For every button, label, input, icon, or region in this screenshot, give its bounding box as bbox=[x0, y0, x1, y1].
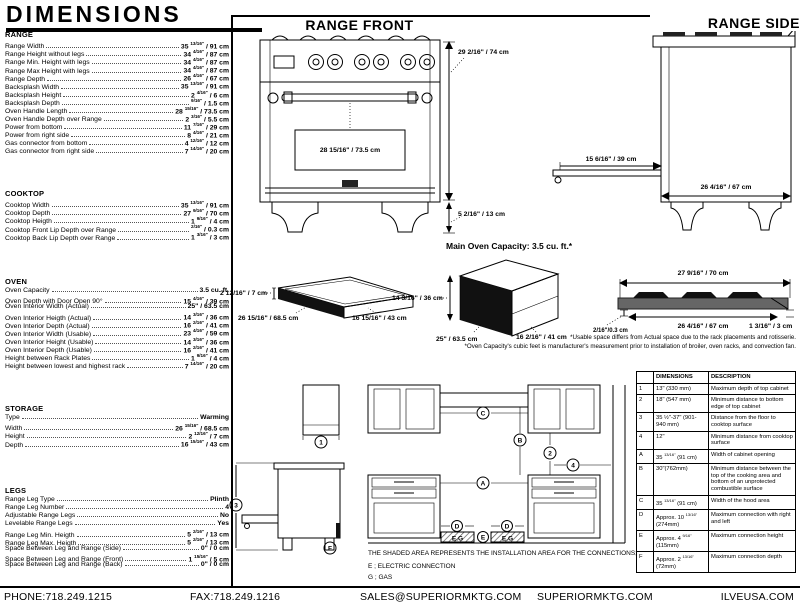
row-id: 3 bbox=[637, 413, 654, 431]
range-front-height-dim: 29 2/16" / 74 cm bbox=[458, 49, 509, 56]
dotted-leader bbox=[69, 112, 173, 113]
spec-label: Oven Interior Width (Actual) bbox=[5, 303, 89, 311]
dotted-leader bbox=[86, 55, 181, 56]
dotted-leader bbox=[118, 231, 189, 232]
callout-1: 1 bbox=[319, 440, 323, 447]
range-front-drawing bbox=[260, 36, 464, 233]
oven-interior-drawing bbox=[440, 260, 558, 336]
footnote-1: *Usable space differs from Actual space … bbox=[465, 333, 797, 342]
spec-label: Cooktop Depth bbox=[5, 210, 50, 218]
dotted-leader bbox=[89, 144, 182, 145]
footer-fax: FAX:718.249.1216 bbox=[190, 591, 280, 603]
dimensions-sheet: DIMENSIONS RANGERange Width35 13/16" / 9… bbox=[0, 0, 800, 610]
spec-label: Range Height without legs bbox=[5, 51, 84, 59]
dotted-leader bbox=[125, 565, 199, 566]
callout-2: 2 bbox=[548, 451, 552, 458]
storage-width-dim: 26 15/16" / 68.5 cm bbox=[238, 315, 298, 322]
spec-label: Height bbox=[5, 433, 25, 441]
row-dimension: Approx. 4 9/16" (115mm) bbox=[654, 531, 709, 552]
spec-value: Warming bbox=[200, 414, 229, 422]
footer-rule bbox=[0, 586, 800, 588]
row-description: Distance from the floor to cooktop surfa… bbox=[709, 413, 796, 431]
spec-value: Plinth bbox=[210, 496, 229, 504]
row-dimension: 35 ½"-37" (901-940 mm) bbox=[654, 413, 709, 431]
spec-row: Oven Interior Heigth (Actual)14 3/16" / … bbox=[5, 311, 229, 319]
spec-row: Cooktop Width35 13/16" / 91 cm bbox=[5, 199, 229, 207]
row-id: B bbox=[637, 464, 654, 495]
section-title: RANGE bbox=[5, 30, 229, 39]
table-row: B30"(762mm)Minimum distance between the … bbox=[637, 464, 796, 495]
dotted-leader bbox=[25, 446, 179, 447]
section-title: COOKTOP bbox=[5, 189, 229, 198]
dotted-leader bbox=[27, 437, 187, 438]
connection-box-label-2: E.G bbox=[502, 536, 513, 543]
spec-row: Levelable Range LegsYes bbox=[5, 520, 229, 528]
row-description: Maximum connection depth bbox=[709, 552, 796, 573]
cooktop-back-lip-dim: 1 3/16" / 3 cm bbox=[749, 323, 792, 330]
spec-section-storage: STORAGETypeWarmingWidth26 15/16" / 68.5 … bbox=[5, 404, 229, 446]
cooktop-inner-dim: 26 4/16" / 67 cm bbox=[678, 323, 729, 330]
spec-label: Oven Handle Depth over Range bbox=[5, 116, 102, 124]
row-dimension: 35 13/16" (91 cm) bbox=[654, 449, 709, 464]
footnote-2: *Oven Capacity's cubic feet is manufactu… bbox=[465, 342, 797, 351]
cooktop-top-dim: 27 9/16" / 70 cm bbox=[678, 270, 729, 277]
spec-label: Oven Interior Height (Usable) bbox=[5, 339, 93, 347]
dotted-leader bbox=[125, 560, 186, 561]
table-row: 412"Minimum distance from cooktop surfac… bbox=[637, 431, 796, 449]
spec-row: TypeWarming bbox=[5, 414, 229, 422]
section-title: OVEN bbox=[5, 277, 229, 286]
dimensions-table-body: 113" (330 mm)Maximum depth of top cabine… bbox=[637, 383, 796, 573]
spec-row: Range Leg Min. Heigth5 2/16" / 13 cm bbox=[5, 528, 229, 536]
spec-row: Range Width35 13/16" / 91 cm bbox=[5, 40, 229, 48]
dotted-leader bbox=[63, 96, 189, 97]
spec-section-legs: LEGSRange Leg TypePlinthRange Leg Number… bbox=[5, 486, 229, 569]
spec-label: Type bbox=[5, 414, 20, 422]
callout-3: 3 bbox=[234, 503, 238, 510]
dotted-leader bbox=[77, 536, 186, 537]
spec-label: Levelable Range Legs bbox=[5, 520, 73, 528]
dotted-leader bbox=[66, 508, 223, 509]
spec-label: Cooktop Width bbox=[5, 202, 50, 210]
dotted-leader bbox=[52, 214, 181, 215]
spec-label: Range Max Height with legs bbox=[5, 68, 90, 76]
spec-label: Oven Interior Depth (Actual) bbox=[5, 323, 90, 331]
row-dimension: 18" (547 mm) bbox=[654, 395, 709, 413]
footer-phone: PHONE:718.249.1215 bbox=[4, 591, 112, 603]
row-id: F bbox=[637, 552, 654, 573]
dotted-leader bbox=[95, 343, 181, 344]
callout-f: F bbox=[328, 546, 332, 553]
dimensions-table-head: DIMENSIONSDESCRIPTION bbox=[637, 372, 796, 384]
range-front-leg-dim: 5 2/16" / 13 cm bbox=[458, 211, 505, 218]
spec-label: Gas connector from right side bbox=[5, 148, 94, 156]
dotted-leader bbox=[46, 47, 179, 48]
installation-notes: THE SHADED AREA REPRESENTS THE INSTALLAT… bbox=[368, 548, 637, 583]
row-id: E bbox=[637, 531, 654, 552]
footer-brand-site: ILVEUSA.COM bbox=[721, 591, 794, 603]
spec-value: 7 14/16" / 20 cm bbox=[185, 360, 229, 371]
row-description: Maximum depth of top cabinet bbox=[709, 383, 796, 395]
spec-value: 0" / 0 cm bbox=[201, 545, 229, 553]
spec-label: Range Depth bbox=[5, 76, 45, 84]
table-row: A35 13/16" (91 cm)Width of cabinet openi… bbox=[637, 449, 796, 464]
page-title: DIMENSIONS bbox=[6, 1, 182, 28]
row-id: D bbox=[637, 510, 654, 531]
row-id: A bbox=[637, 449, 654, 464]
dotted-leader bbox=[104, 120, 184, 121]
spec-label: Gas connector from bottom bbox=[5, 140, 87, 148]
section-title: LEGS bbox=[5, 486, 229, 495]
spec-label: Height between lowest and highest rack bbox=[5, 363, 125, 371]
callout-a: A bbox=[481, 481, 486, 488]
table-row: 335 ½"-37" (901-940 mm)Distance from the… bbox=[637, 413, 796, 431]
dotted-leader bbox=[92, 63, 182, 64]
spec-row: Oven Capacity3.5 cu. ft. bbox=[5, 287, 229, 295]
dotted-leader bbox=[92, 327, 182, 328]
footer-email: SALES@SUPERIORMKTG.COM bbox=[360, 591, 522, 603]
row-description: Minimum distance between the top of the … bbox=[709, 464, 796, 495]
spec-section-range: RANGERange Width35 13/16" / 91 cmRange H… bbox=[5, 30, 229, 153]
spec-value: 16 15/16" / 43 cm bbox=[181, 438, 229, 449]
spec-label: Cooktop Front Lip Depth over Range bbox=[5, 227, 116, 235]
section-title: STORAGE bbox=[5, 404, 229, 413]
dotted-leader bbox=[52, 206, 179, 207]
spec-label: Oven Handle Length bbox=[5, 108, 67, 116]
spec-row: Range Leg Number4 bbox=[5, 504, 229, 512]
range-side-diagram: 15 6/16" / 39 cm 26 4/16" / 67 cm bbox=[545, 30, 800, 238]
table-row: EApprox. 4 9/16" (115mm)Maximum connecti… bbox=[637, 531, 796, 552]
spec-label: Cooktop Back Lip Depth over Range bbox=[5, 235, 115, 243]
dotted-leader bbox=[96, 152, 183, 153]
spec-label: Oven Interior Heigth (Actual) bbox=[5, 315, 91, 323]
dotted-leader bbox=[54, 222, 189, 223]
spec-label: Range Leg Min. Heigth bbox=[5, 532, 75, 540]
dotted-leader bbox=[64, 128, 181, 129]
spec-label: Space Between Leg and Range (Side) bbox=[5, 545, 121, 553]
table-header-id bbox=[637, 372, 654, 384]
row-description: Minimum distance from cooktop surface bbox=[709, 431, 796, 449]
connection-box-label-1: E.G bbox=[452, 536, 463, 543]
row-description: Width of the hood area bbox=[709, 495, 796, 510]
dotted-leader bbox=[92, 72, 182, 73]
dotted-leader bbox=[71, 136, 185, 137]
spec-label: Space Between Leg and Range (Back) bbox=[5, 561, 123, 569]
spec-label: Oven Capacity bbox=[5, 287, 50, 295]
row-description: Maximum connection height bbox=[709, 531, 796, 552]
electric-note: E ; ELECTRIC CONNECTION bbox=[368, 561, 637, 572]
installation-drawing bbox=[230, 385, 625, 554]
callout-e: E bbox=[481, 535, 486, 542]
dotted-leader bbox=[22, 418, 198, 419]
table-row: 218" (547 mm)Minimum distance to bottom … bbox=[637, 395, 796, 413]
oven-interior-height-dim: 14 3/16" / 36 cm bbox=[392, 295, 443, 302]
callout-b: B bbox=[518, 438, 523, 445]
spec-label: Height between Rack Plates bbox=[5, 355, 90, 363]
spec-label: Power from bottom bbox=[5, 124, 62, 132]
dotted-leader bbox=[117, 239, 189, 240]
table-row: 113" (330 mm)Maximum depth of top cabine… bbox=[637, 383, 796, 395]
row-id: 2 bbox=[637, 395, 654, 413]
table-row: C35 13/16" (91 cm)Width of the hood area bbox=[637, 495, 796, 510]
spec-label: Depth bbox=[5, 442, 23, 450]
spec-label: Range Leg Number bbox=[5, 504, 64, 512]
spec-row: Depth16 15/16" / 43 cm bbox=[5, 438, 229, 446]
spec-label: Backsplash Width bbox=[5, 84, 59, 92]
table-row: FApprox. 2 13/16" (72mm)Maximum connecti… bbox=[637, 552, 796, 573]
storage-height-dim: 2 12/16" / 7 cm bbox=[220, 290, 267, 297]
dotted-leader bbox=[94, 351, 182, 352]
row-id: C bbox=[637, 495, 654, 510]
spec-value: 7 14/16" / 20 cm bbox=[185, 145, 229, 156]
table-header-dimensions: DIMENSIONS bbox=[654, 372, 709, 384]
range-side-title: RANGE SIDE bbox=[650, 15, 800, 31]
gas-note: G ; GAS bbox=[368, 572, 637, 583]
range-side-drawing bbox=[553, 28, 795, 230]
range-front-title: RANGE FRONT bbox=[262, 17, 457, 33]
spec-row: Width26 15/16" / 68.5 cm bbox=[5, 422, 229, 430]
footnotes: *Usable space differs from Actual space … bbox=[465, 333, 797, 351]
spec-label: Oven Interior Depth (Usable) bbox=[5, 347, 92, 355]
spec-label: Backsplash Depth bbox=[5, 100, 60, 108]
spec-label: Range Leg Type bbox=[5, 496, 55, 504]
dotted-leader bbox=[24, 429, 173, 430]
spec-label: Backsplash Height bbox=[5, 92, 61, 100]
row-dimension: 12" bbox=[654, 431, 709, 449]
dotted-leader bbox=[127, 367, 183, 368]
spec-row: Oven Interior Width (Actual)25" / 63.5 c… bbox=[5, 303, 229, 311]
callout-d2: D bbox=[505, 524, 510, 531]
spec-label: Range Min. Height with legs bbox=[5, 59, 90, 67]
spec-label: Oven Interior Width (Usable) bbox=[5, 331, 91, 339]
spec-label: Power from right side bbox=[5, 132, 69, 140]
dotted-leader bbox=[123, 549, 199, 550]
spec-label: Cooktop Heigth bbox=[5, 218, 52, 226]
row-dimension: 30"(762mm) bbox=[654, 464, 709, 495]
row-id: 4 bbox=[637, 431, 654, 449]
row-dimension: 35 13/16" (91 cm) bbox=[654, 495, 709, 510]
callout-d1: D bbox=[455, 524, 460, 531]
spec-row: Space Between Leg and Range (Front)1 15/… bbox=[5, 553, 229, 561]
dimensions-table: DIMENSIONSDESCRIPTION 113" (330 mm)Maxim… bbox=[636, 371, 796, 573]
table-header-description: DESCRIPTION bbox=[709, 372, 796, 384]
cooktop-profile-diagram: 27 9/16" / 70 cm 26 4/16" / 67 cm 2/16"/… bbox=[593, 258, 800, 338]
dotted-leader bbox=[105, 302, 182, 303]
spec-row: Range Leg TypePlinth bbox=[5, 496, 229, 504]
range-side-depth-dim: 26 4/16" / 67 cm bbox=[701, 184, 752, 191]
callout-4: 4 bbox=[571, 463, 575, 470]
row-description: Maximum connection with right and left bbox=[709, 510, 796, 531]
row-dimension: 13" (330 mm) bbox=[654, 383, 709, 395]
spec-label: Range Width bbox=[5, 43, 44, 51]
spec-row: Oven Depth with Door Open 90°15 4/16" / … bbox=[5, 295, 229, 303]
spec-section-cooktop: COOKTOPCooktop Width35 13/16" / 91 cmCoo… bbox=[5, 189, 229, 239]
dotted-leader bbox=[93, 335, 181, 336]
row-id: 1 bbox=[637, 383, 654, 395]
spec-label: Adjustable Range Legs bbox=[5, 512, 75, 520]
row-dimension: Approx. 10 13/16" (274mm) bbox=[654, 510, 709, 531]
dotted-leader bbox=[93, 319, 181, 320]
dotted-leader bbox=[57, 500, 208, 501]
row-description: Minimum distance to bottom edge of top c… bbox=[709, 395, 796, 413]
dotted-leader bbox=[61, 88, 179, 89]
footer-site: SUPERIORMKTG.COM bbox=[537, 591, 653, 603]
dotted-leader bbox=[52, 291, 198, 292]
spec-row: Adjustable Range LegsNo bbox=[5, 512, 229, 520]
spec-value: 1 3/16" / 3 cm bbox=[191, 231, 229, 242]
dotted-leader bbox=[91, 307, 186, 308]
row-description: Width of cabinet opening bbox=[709, 449, 796, 464]
installation-diagram: 1 3 F C B 2 4 A D D E E.G E.G bbox=[228, 383, 632, 556]
dotted-leader bbox=[75, 524, 216, 525]
range-front-handle-dim: 28 15/16" / 73.5 cm bbox=[320, 147, 380, 154]
row-dimension: Approx. 2 13/16" (72mm) bbox=[654, 552, 709, 573]
dotted-leader bbox=[62, 104, 189, 105]
spec-value: 0" / 0 cm bbox=[201, 561, 229, 569]
range-side-door-dim: 15 6/16" / 39 cm bbox=[586, 156, 637, 163]
dotted-leader bbox=[47, 80, 181, 81]
dotted-leader bbox=[77, 516, 218, 517]
range-front-diagram: 28 15/16" / 73.5 cm 29 2/16" / 74 cm 5 2… bbox=[238, 30, 518, 242]
table-row: DApprox. 10 13/16" (274mm)Maximum connec… bbox=[637, 510, 796, 531]
spec-label: Width bbox=[5, 425, 22, 433]
cooktop-profile-drawing bbox=[607, 279, 794, 325]
callout-c: C bbox=[481, 411, 486, 418]
shaded-area-note: THE SHADED AREA REPRESENTS THE INSTALLAT… bbox=[368, 548, 637, 559]
dotted-leader bbox=[92, 359, 189, 360]
spec-section-oven: OVENOven Capacity3.5 cu. ft.Oven Depth w… bbox=[5, 277, 229, 368]
spec-row: Height2 12/16" / 7 cm bbox=[5, 430, 229, 438]
